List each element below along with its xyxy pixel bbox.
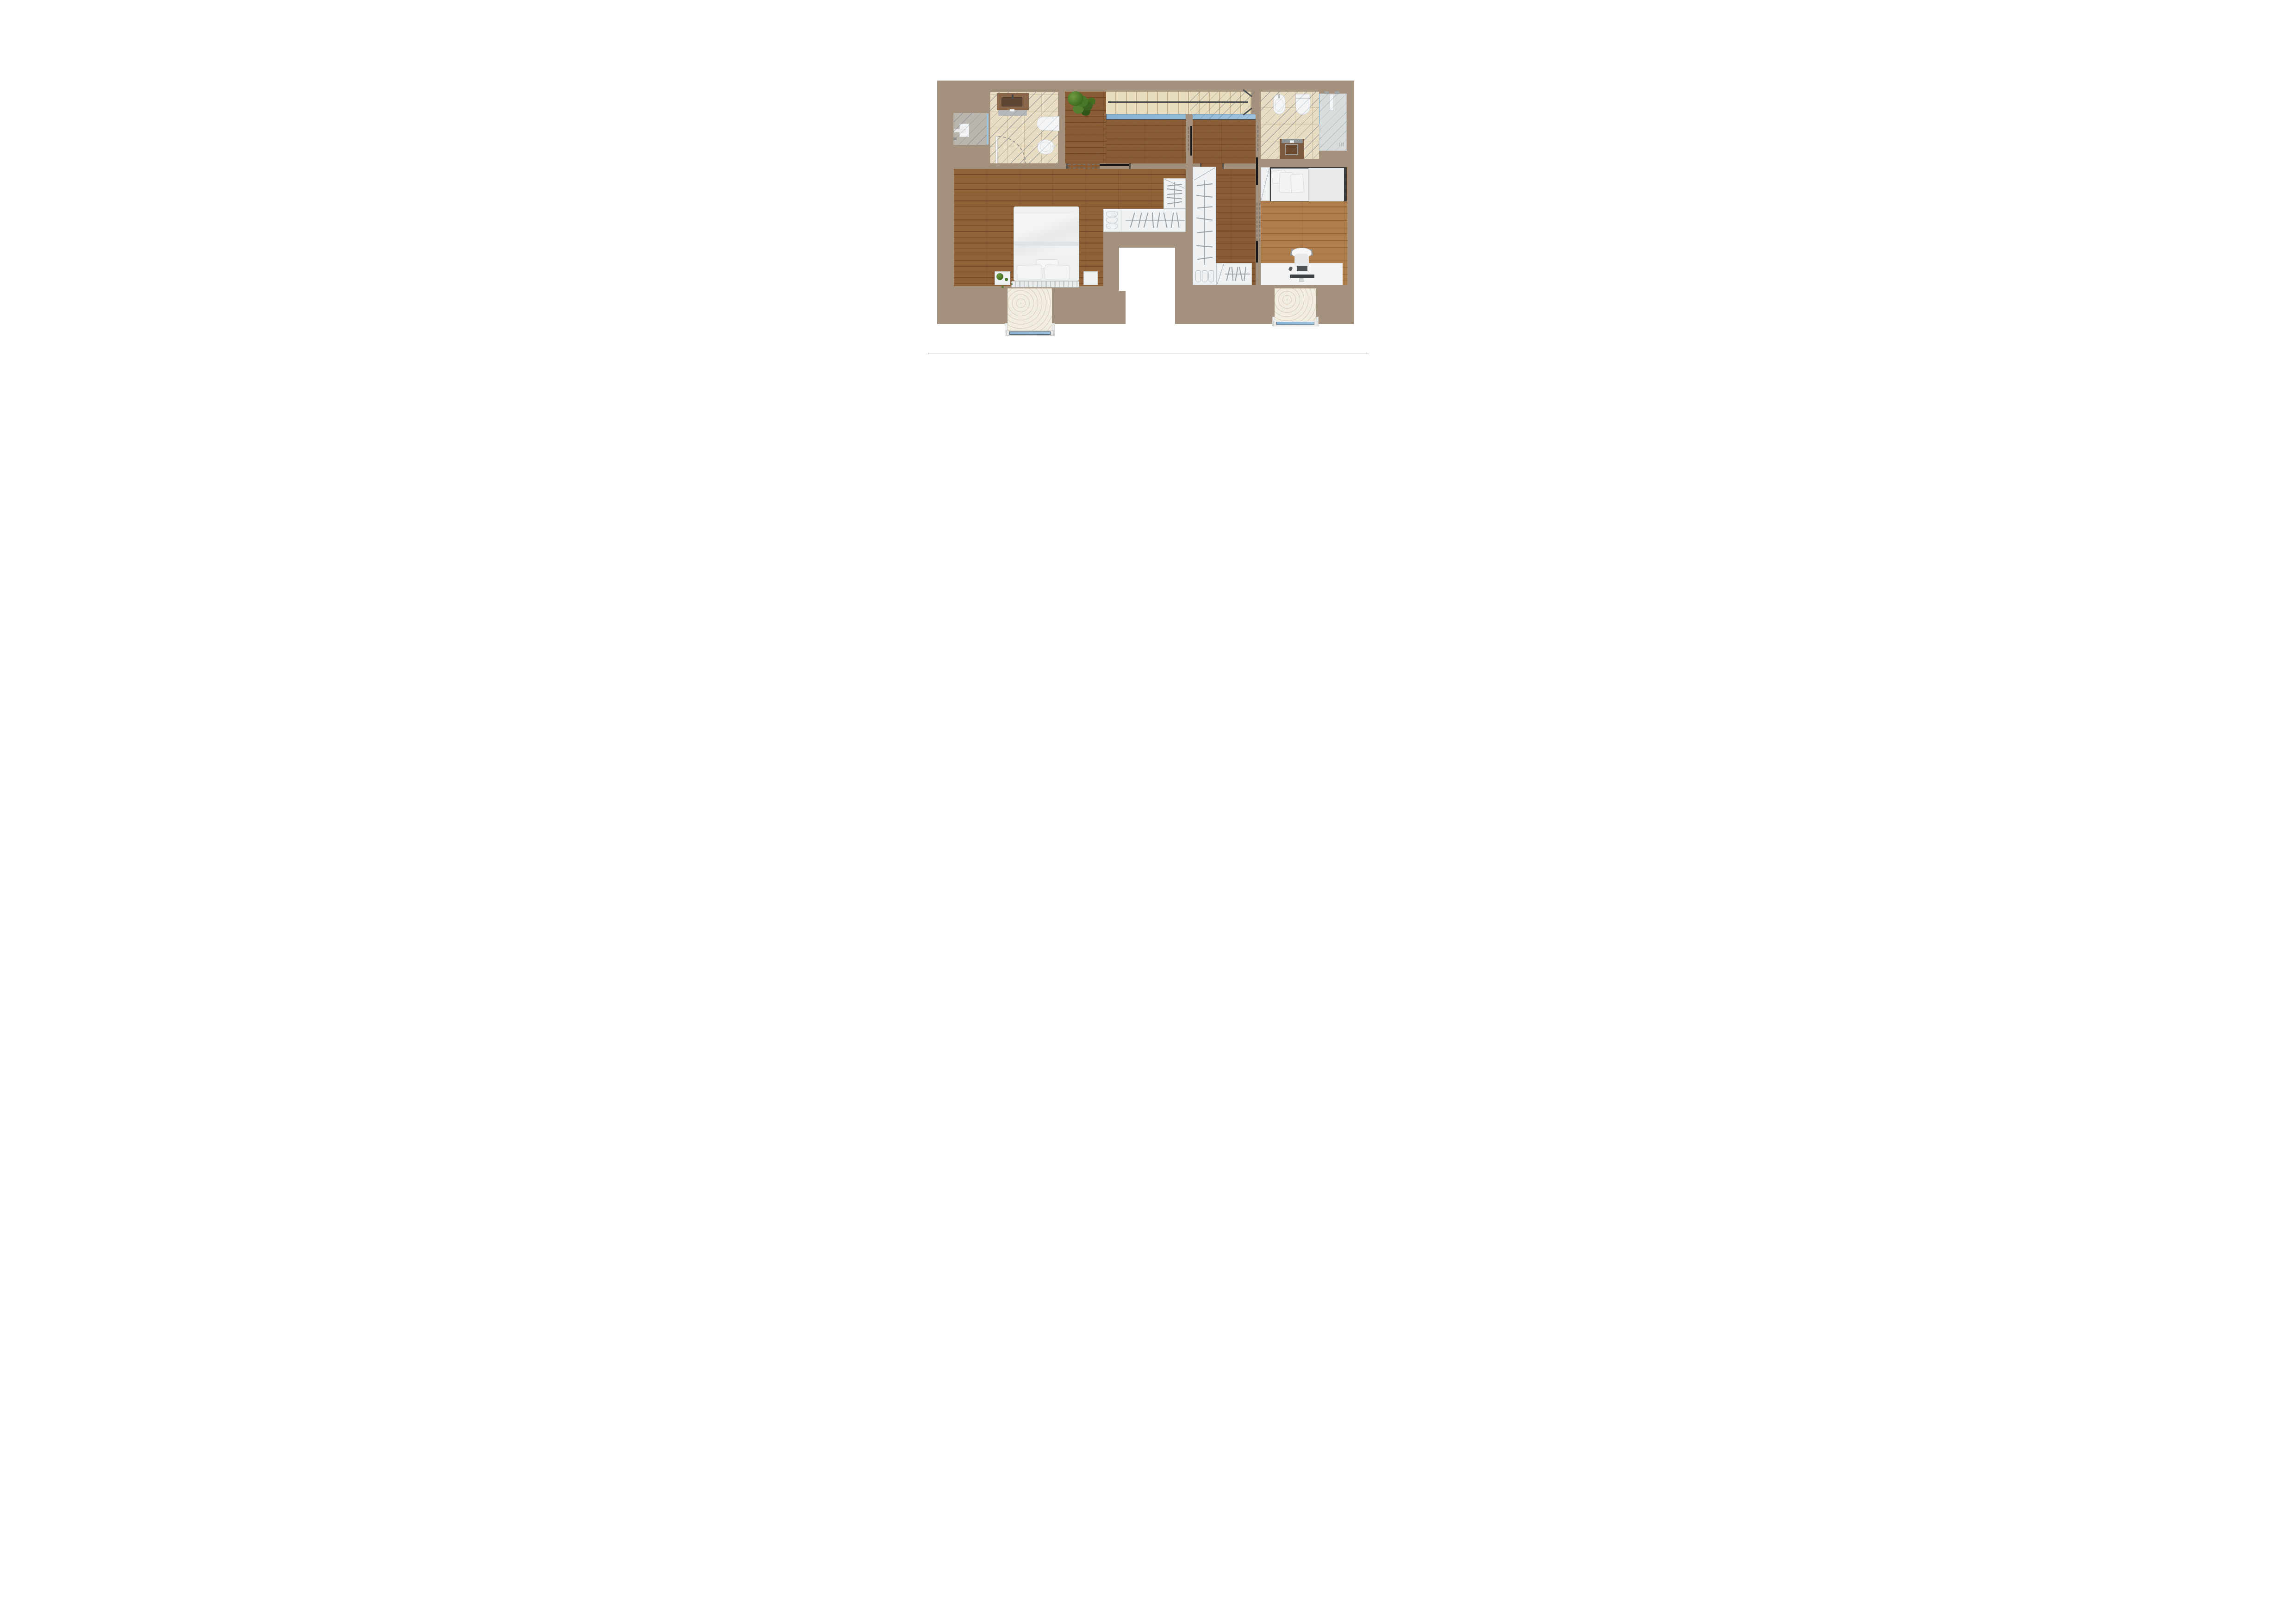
footer-rule [928,354,1369,355]
master-door-jamb [1129,163,1131,169]
nightstand [1083,271,1098,285]
hall-plant [1068,91,1083,106]
bedroom2-closet-door-dash [1257,203,1257,242]
floor-plan-page [861,0,1435,406]
shoe-outline-icon [1208,270,1214,282]
bathroom-right-section-hatch [1261,92,1319,160]
balcony-right-floor [1275,288,1316,321]
shoe-outline-icon [1106,224,1118,229]
master-door-jamb [1066,163,1068,169]
bedroom2-pillow [1290,174,1304,193]
master-door-threshold-dash [1068,168,1100,169]
bedroom2-blanket [1308,168,1344,202]
bottom-void-notch [1119,248,1175,324]
master-bed-pillow [1044,264,1070,281]
desk-chair-seat [1294,254,1309,266]
vestibule-door-leaf [1190,126,1192,156]
nightstand-plant [996,273,1003,280]
shoe-outline-icon [1202,270,1207,282]
hall-bedroom-wall [937,163,1193,169]
bedroom2-cabinet-diagonal [1261,168,1269,200]
closet-opening-jamb [1222,163,1224,169]
desk-keyboard [1297,266,1308,271]
shoe-outline-icon [1106,212,1118,217]
master-headboard [1011,281,1079,287]
bathroom-right-door-dash [1257,125,1258,151]
ledge-section-hatch [953,113,988,144]
hallway-faint-hatch [1106,120,1256,163]
shower-right-section-hatch [1319,94,1347,151]
closet2-hanger-rail [1204,180,1205,265]
bedroom2-closet-door-dash [1259,203,1260,242]
stairs-section-hatch [1190,92,1261,119]
master-bed-duvet [1014,214,1079,256]
vestibule-door-opening-dash [1188,127,1189,150]
master-bed-pillow [1016,264,1042,281]
balcony-right-glass-railing [1276,322,1315,325]
balcony-left-floor [1008,288,1052,331]
ledge-window-glazing [987,113,989,144]
master-closet-divider [1121,209,1121,232]
closet2-low-diagonal [1217,264,1224,284]
bedroom2-door-leaf [1256,157,1258,185]
desk-monitor-stand [1299,278,1304,282]
shoe-outline-icon [1195,270,1201,282]
master-closet-rail-horizontal [1126,220,1184,221]
master-bedroom-floor-a [954,169,1186,178]
bedroom2-door-leaf [1256,241,1258,262]
void-step-wall [1119,291,1126,325]
balcony-left-glass-railing [1009,331,1051,335]
shoe-outline-icon [1106,218,1118,223]
master-bed-fold [1014,242,1079,246]
master-bedroom-floor-b [954,178,1164,209]
closet2-shelf-diagonal [1194,168,1215,180]
desk-monitor [1290,275,1314,278]
master-sliding-door-leaf [1100,164,1129,166]
master-door-threshold-dash [1068,164,1100,165]
bathroom-left-section-hatch [990,92,1058,163]
